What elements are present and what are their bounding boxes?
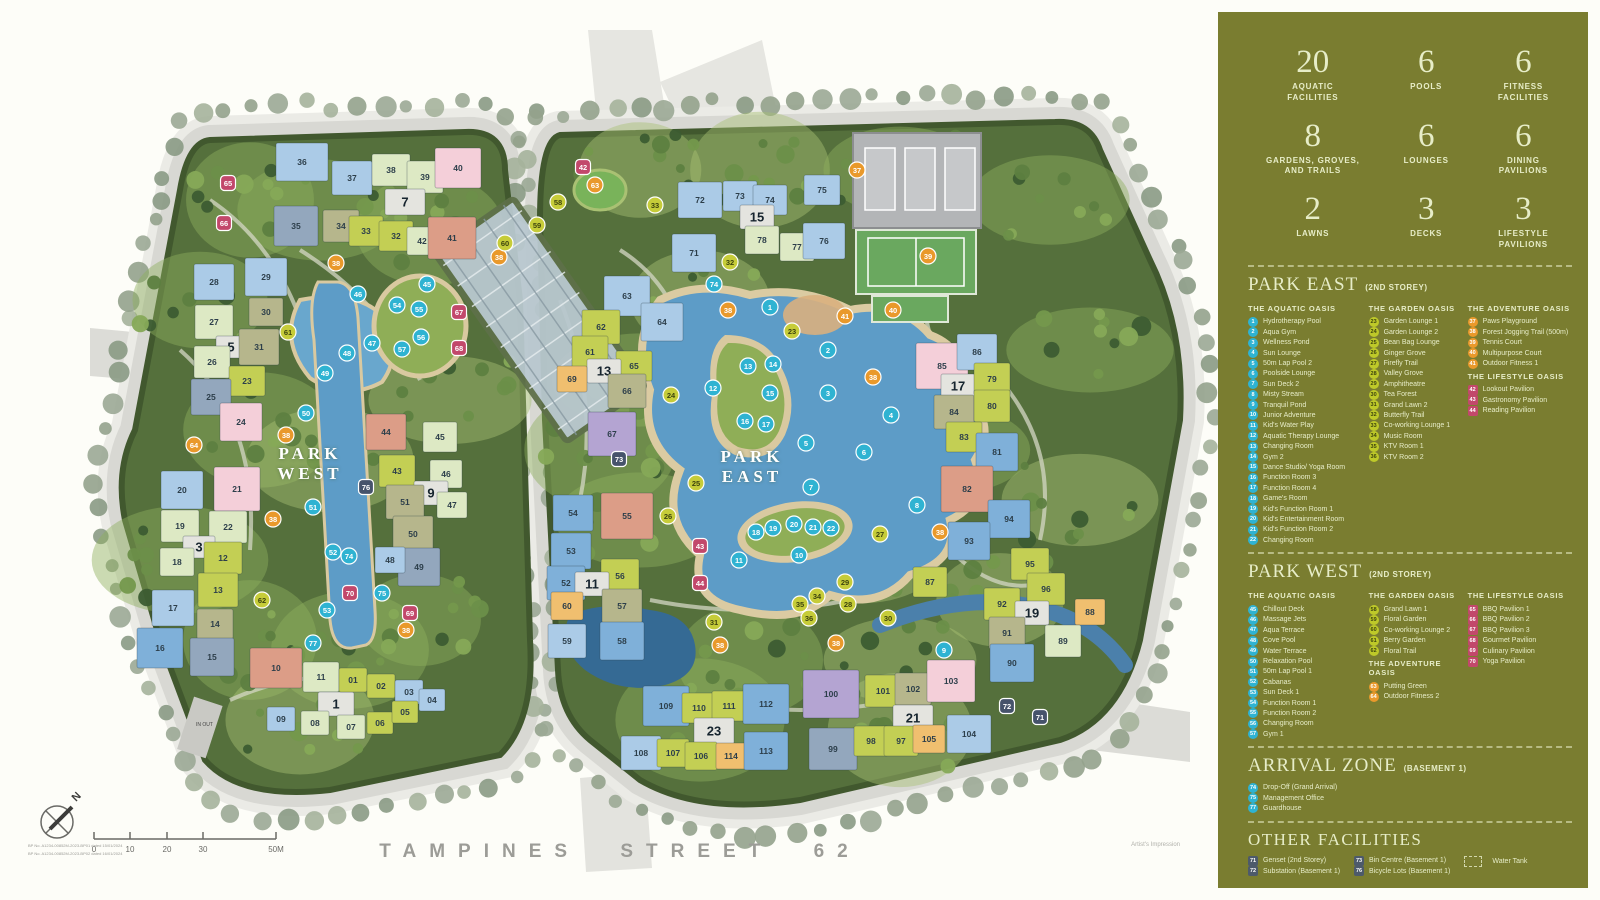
section-title: PARK WEST: [1248, 561, 1362, 583]
legend-item-22: 22Changing Room: [1248, 535, 1369, 545]
perimeter-tree: [1120, 712, 1140, 732]
map-badge-aq-51: 51: [305, 499, 321, 515]
legend-item-50: 50Relaxation Pool: [1248, 656, 1369, 666]
legend-item-16: 16Function Room 3: [1248, 473, 1369, 483]
map-badge-ga-61: 61: [280, 324, 296, 340]
legend-badge-25: 25: [1369, 338, 1379, 348]
map-building-71: 71: [672, 234, 716, 272]
tree: [1073, 528, 1084, 539]
svg-text:1: 1: [768, 303, 772, 312]
svg-text:104: 104: [962, 729, 976, 739]
legend-item-66: 66BBQ Pavilion 2: [1468, 615, 1572, 625]
perimeter-tree: [87, 445, 108, 466]
svg-text:57: 57: [398, 345, 406, 354]
map-badge-aq-2: 2: [820, 342, 836, 358]
tree: [776, 145, 794, 163]
tree: [941, 759, 956, 774]
legend-item-label: Game's Room: [1263, 495, 1308, 502]
group-header: THE GARDEN OASIS: [1369, 304, 1468, 313]
map-building-24: 24: [220, 403, 262, 441]
svg-text:71: 71: [1036, 713, 1044, 722]
svg-text:43: 43: [392, 466, 402, 476]
svg-text:70: 70: [346, 589, 354, 598]
perimeter-tree: [1201, 355, 1218, 373]
legend-item-label: KTV Room 1: [1384, 443, 1424, 450]
svg-text:99: 99: [828, 744, 838, 754]
legend-badge-26: 26: [1369, 348, 1379, 358]
legend-item-27: 27Firefly Trail: [1369, 358, 1468, 368]
stat-value: 3: [1378, 193, 1475, 226]
legend-item-label: Misty Stream: [1263, 391, 1304, 398]
tree: [463, 411, 474, 422]
svg-text:05: 05: [400, 707, 410, 717]
perimeter-tree: [860, 811, 882, 833]
tree: [584, 147, 593, 156]
legend-item-label: Garden Lounge 2: [1384, 329, 1439, 336]
svg-text:37: 37: [853, 166, 861, 175]
svg-text:18: 18: [752, 528, 760, 537]
map-building-44: 44: [366, 414, 406, 450]
legend-item-49: 49Water Terrace: [1248, 646, 1369, 656]
map-badge-aq-11: 11: [731, 552, 747, 568]
legend-item-label: Drop-Off (Grand Arrival): [1263, 784, 1337, 791]
legend-item-19: 19Kid's Function Room 1: [1248, 504, 1369, 514]
svg-text:110: 110: [692, 703, 706, 713]
map-building-100: 100: [803, 670, 859, 718]
perimeter-tree: [305, 811, 324, 830]
tree: [186, 171, 204, 189]
perimeter-tree: [166, 727, 181, 742]
svg-text:55: 55: [622, 511, 632, 521]
svg-text:79: 79: [987, 374, 997, 384]
map-building-75: 75: [804, 175, 840, 205]
legend-item-57: 57Gym 1: [1248, 729, 1369, 739]
svg-text:34: 34: [336, 221, 346, 231]
map-badge-ar-77: 77: [305, 635, 321, 651]
perimeter-tree: [1154, 644, 1169, 659]
perimeter-tree: [513, 136, 526, 149]
legend-item-label: Grand Lawn 1: [1384, 606, 1428, 613]
legend-item-72: 72Substation (Basement 1): [1248, 866, 1340, 876]
legend-item-label: Water Terrace: [1263, 648, 1307, 655]
map-badge-aq-1: 1: [762, 299, 778, 315]
legend-badge-63: 63: [1369, 682, 1379, 692]
svg-text:61: 61: [585, 347, 595, 357]
map-building-69: 69: [557, 366, 587, 392]
section-subtitle: (BASEMENT 1): [1404, 764, 1467, 773]
map-badge-ad-38: 38: [865, 369, 881, 385]
perimeter-tree: [245, 99, 258, 112]
tree: [724, 679, 735, 690]
perimeter-tree: [99, 422, 112, 435]
svg-text:73: 73: [615, 455, 623, 464]
map-building-26: 26: [194, 346, 230, 378]
svg-text:66: 66: [622, 386, 632, 396]
map-badge-ar-74: 74: [706, 276, 722, 292]
tree: [1074, 206, 1086, 218]
legend-badge-19: 19: [1248, 504, 1258, 514]
map-badge-aq-46: 46: [350, 286, 366, 302]
tree: [788, 137, 799, 148]
legend-item-63: 63Putting Green: [1369, 681, 1468, 691]
perimeter-tree: [661, 812, 673, 824]
legend-badge-53: 53: [1248, 688, 1258, 698]
legend-item-label: Berry Garden: [1384, 637, 1426, 644]
svg-text:83: 83: [959, 432, 969, 442]
svg-text:16: 16: [155, 643, 165, 653]
svg-text:80: 80: [987, 401, 997, 411]
perimeter-tree: [435, 785, 454, 804]
map-building-82: 82: [941, 466, 993, 512]
legend-item-52: 52Cabanas: [1248, 677, 1369, 687]
map-badge-aq-14: 14: [765, 356, 781, 372]
legend-item-label: Management Office: [1263, 795, 1324, 802]
legend-item-label: Tennis Court: [1483, 339, 1522, 346]
svg-text:8: 8: [915, 501, 919, 510]
svg-text:9: 9: [942, 646, 946, 655]
legend-badge-64: 64: [1369, 692, 1379, 702]
svg-text:21: 21: [232, 484, 242, 494]
tree: [1021, 462, 1029, 470]
tree: [1093, 369, 1103, 379]
svg-text:20: 20: [790, 520, 798, 529]
svg-text:19: 19: [1025, 606, 1039, 621]
legend-item-label: Culinary Pavilion: [1483, 648, 1535, 655]
svg-text:38: 38: [386, 165, 396, 175]
tree: [1123, 509, 1135, 521]
tree: [1109, 338, 1119, 348]
tree: [265, 631, 275, 641]
perimeter-tree: [1173, 562, 1189, 578]
tree: [641, 458, 661, 478]
legend-badge-8: 8: [1248, 390, 1258, 400]
site-plan-page: IN OUT3637383940735343332424128293027526…: [0, 0, 1600, 900]
tree: [192, 190, 205, 203]
svg-text:65: 65: [224, 179, 232, 188]
tree: [748, 268, 761, 281]
svg-text:30: 30: [884, 614, 892, 623]
tree: [1058, 172, 1071, 185]
legend-item-label: Butterfly Trail: [1384, 412, 1425, 419]
map-building-35: 35: [274, 206, 318, 246]
svg-text:09: 09: [276, 714, 286, 724]
perimeter-tree: [323, 103, 338, 118]
legend-item-label: Aqua Terrace: [1263, 627, 1305, 634]
legend-column: THE AQUATIC OASIS45Chillout Deck46Massag…: [1248, 588, 1369, 739]
svg-text:64: 64: [657, 317, 667, 327]
perimeter-tree: [1021, 86, 1036, 101]
group-header: THE AQUATIC OASIS: [1248, 304, 1369, 313]
perimeter-tree: [994, 86, 1014, 106]
tennis-area: [853, 133, 981, 322]
svg-text:63: 63: [591, 181, 599, 190]
map-building-59: 59: [548, 624, 586, 658]
svg-text:10: 10: [271, 663, 281, 673]
stat-value: 8: [1248, 120, 1378, 153]
stat-label: FITNESS FACILITIES: [1475, 82, 1572, 104]
legend-item-label: Sun Deck 2: [1263, 381, 1299, 388]
legend-badge-39: 39: [1468, 338, 1478, 348]
legend-badge-51: 51: [1248, 667, 1258, 677]
tree: [167, 307, 179, 319]
tree: [466, 191, 478, 203]
legend-item-label: Valley Grove: [1384, 370, 1424, 377]
legend-item-2: 2Aqua Gym: [1248, 327, 1369, 337]
perimeter-tree: [919, 85, 935, 101]
map-building-80: 80: [974, 390, 1010, 422]
tree: [256, 709, 264, 717]
legend-item-48: 48Cove Pool: [1248, 636, 1369, 646]
legend-item-label: Tranquil Pond: [1263, 402, 1306, 409]
street-name-label: TAMPINES STREET 62: [270, 841, 970, 863]
perimeter-tree: [937, 786, 953, 802]
legend-badge-52: 52: [1248, 677, 1258, 687]
svg-text:100: 100: [824, 689, 838, 699]
legend-badge-73: 73: [1354, 856, 1364, 866]
group-header: THE AQUATIC OASIS: [1248, 591, 1369, 600]
svg-text:1: 1: [332, 697, 339, 712]
map-badge-aq-15: 15: [762, 385, 778, 401]
svg-text:63: 63: [622, 291, 632, 301]
legend-item-18: 18Game's Room: [1248, 493, 1369, 503]
legend-item-70: 70Yoga Pavilion: [1468, 656, 1572, 666]
perimeter-tree: [328, 806, 346, 824]
tree: [376, 657, 384, 665]
legend-item-label: Function Room 3: [1263, 474, 1316, 481]
legend-item-label: Changing Room: [1263, 537, 1314, 544]
legend-item-label: Gym 1: [1263, 731, 1284, 738]
tree: [538, 448, 554, 464]
legend-item-label: Cove Pool: [1263, 637, 1295, 644]
tree: [434, 194, 449, 209]
legend-item-20: 20Kid's Entertainment Room: [1248, 514, 1369, 524]
stat-3: 8GARDENS, GROVES, AND TRAILS: [1248, 120, 1378, 178]
stat-6: 2LAWNS: [1248, 193, 1378, 251]
perimeter-tree: [966, 90, 986, 110]
map-badge-li-65: 65: [221, 176, 236, 191]
legend-item-label: Function Room 4: [1263, 485, 1316, 492]
tree: [1089, 201, 1099, 211]
svg-text:52: 52: [561, 578, 571, 588]
perimeter-tree: [653, 100, 674, 121]
other-facilities-column: 73Bin Centre (Basement 1)76Bicycle Lots …: [1354, 856, 1450, 877]
map-building-88: 88: [1075, 599, 1105, 625]
tree: [353, 743, 364, 754]
svg-text:21: 21: [809, 523, 817, 532]
legend-badge-27: 27: [1369, 359, 1379, 369]
legend-badge-16: 16: [1248, 473, 1258, 483]
svg-text:20: 20: [163, 845, 172, 854]
svg-text:46: 46: [354, 290, 362, 299]
svg-text:31: 31: [710, 618, 718, 627]
legend-item-53: 53Sun Deck 1: [1248, 688, 1369, 698]
legend-badge-37: 37: [1468, 317, 1478, 327]
map-badge-aq-17: 17: [758, 416, 774, 432]
map-building-113: 113: [744, 732, 788, 770]
other-facilities-column: 71Genset (2nd Storey)72Substation (Basem…: [1248, 856, 1340, 877]
svg-text:38: 38: [269, 515, 277, 524]
legend-badge-58: 58: [1369, 605, 1379, 615]
perimeter-tree: [409, 793, 427, 811]
svg-text:56: 56: [615, 571, 625, 581]
svg-text:12: 12: [709, 384, 717, 393]
legend-item-label: Bin Centre (Basement 1): [1369, 857, 1446, 864]
map-badge-ad-38: 38: [278, 427, 294, 443]
perimeter-tree: [347, 97, 366, 116]
legend-badge-56: 56: [1248, 719, 1258, 729]
tree: [800, 652, 808, 660]
perimeter-tree: [121, 636, 136, 651]
section-title: PARK EAST: [1248, 274, 1358, 296]
tree: [1036, 310, 1053, 327]
stat-label: LAWNS: [1248, 229, 1378, 240]
group-header: THE ADVENTURE OASIS: [1369, 659, 1468, 677]
map-building-15: 15: [740, 205, 774, 229]
perimeter-tree: [150, 213, 163, 226]
group-header: THE LIFESTYLE OASIS: [1468, 372, 1572, 381]
map-badge-aq-50: 50: [298, 405, 314, 421]
perimeter-tree: [812, 89, 832, 109]
legend-item-label: Substation (Basement 1): [1263, 868, 1340, 875]
perimeter-tree: [525, 752, 541, 768]
svg-text:29: 29: [841, 578, 849, 587]
svg-text:106: 106: [694, 751, 708, 761]
perimeter-tree: [299, 93, 314, 108]
legend-item-36: 36KTV Room 2: [1369, 452, 1468, 462]
map-building-104: 104: [947, 715, 991, 753]
legend-item-label: Amphitheatre: [1384, 381, 1426, 388]
tree: [471, 600, 489, 618]
map-badge-aq-49: 49: [317, 365, 333, 381]
legend-badge-9: 9: [1248, 400, 1258, 410]
tree: [725, 164, 744, 183]
svg-text:96: 96: [1041, 584, 1051, 594]
legend-item-47: 47Aqua Terrace: [1248, 625, 1369, 635]
map-building-66: 66: [608, 374, 646, 408]
svg-text:38: 38: [869, 373, 877, 382]
svg-text:95: 95: [1025, 559, 1035, 569]
svg-text:58: 58: [617, 636, 627, 646]
legend-item-3: 3Wellness Pond: [1248, 338, 1369, 348]
svg-text:9: 9: [427, 486, 434, 501]
map-badge-ga-26: 26: [660, 508, 676, 524]
svg-text:15: 15: [766, 389, 774, 398]
map-building-76: 76: [803, 223, 845, 259]
tree: [861, 632, 879, 650]
map-badge-aq-18: 18: [748, 524, 764, 540]
perimeter-tree: [569, 758, 583, 772]
perimeter-tree: [557, 111, 569, 123]
svg-text:98: 98: [866, 736, 876, 746]
svg-text:93: 93: [964, 536, 974, 546]
svg-text:15: 15: [207, 652, 217, 662]
stat-2: 6FITNESS FACILITIES: [1475, 46, 1572, 104]
perimeter-tree: [1161, 620, 1173, 632]
artist-impression-note: Artist's Impression: [1020, 842, 1180, 848]
legend-badge-46: 46: [1248, 615, 1258, 625]
map-building-106: 106: [685, 742, 717, 770]
svg-text:72: 72: [1003, 702, 1011, 711]
map-badge-ga-28: 28: [840, 596, 856, 612]
legend-item-42: 42Lookout Pavilion: [1468, 385, 1572, 395]
legend-item-label: Outdoor Fitness 2: [1384, 693, 1440, 700]
perimeter-tree: [906, 793, 927, 814]
perimeter-tree: [400, 100, 412, 112]
legend-item-46: 46Massage Jets: [1248, 615, 1369, 625]
legend-item-41: 41Outdoor Fitness 1: [1468, 358, 1572, 368]
legend-item-label: Putting Green: [1384, 683, 1427, 690]
legend-badge-45: 45: [1248, 605, 1258, 615]
perimeter-tree: [1110, 729, 1130, 749]
legend-item-label: 50m Lap Pool 1: [1263, 668, 1312, 675]
tree: [1094, 309, 1105, 320]
svg-text:84: 84: [949, 407, 959, 417]
tree: [119, 577, 136, 594]
water-tank-item: Water Tank: [1464, 857, 1527, 867]
legend-item-label: Guardhouse: [1263, 805, 1302, 812]
svg-text:107: 107: [666, 748, 680, 758]
legend-item-10: 10Junior Adventure: [1248, 410, 1369, 420]
map-building-01: 01: [339, 668, 367, 692]
svg-text:50: 50: [302, 409, 310, 418]
perimeter-tree: [90, 498, 108, 516]
map-badge-aq-3: 3: [820, 385, 836, 401]
legend-item-73: 73Bin Centre (Basement 1): [1354, 856, 1450, 866]
legend-badge-28: 28: [1369, 369, 1379, 379]
svg-text:78: 78: [757, 235, 767, 245]
legend-badge-14: 14: [1248, 452, 1258, 462]
perimeter-tree: [479, 779, 498, 798]
svg-text:6: 6: [862, 448, 866, 457]
map-badge-fa-73: 73: [612, 452, 627, 467]
perimeter-tree: [171, 112, 188, 129]
svg-text:87: 87: [925, 577, 935, 587]
map-badge-li-43: 43: [693, 539, 708, 554]
legend-badge-69: 69: [1468, 646, 1478, 656]
svg-text:23: 23: [707, 724, 721, 739]
legend-badge-55: 55: [1248, 708, 1258, 718]
perimeter-tree: [1013, 772, 1028, 787]
svg-text:12: 12: [218, 553, 228, 563]
legend-badge-61: 61: [1369, 636, 1379, 646]
stat-value: 6: [1475, 120, 1572, 153]
legend-badge-50: 50: [1248, 657, 1258, 667]
water-tank-column: Water Tank: [1464, 856, 1527, 877]
svg-text:38: 38: [724, 306, 732, 315]
svg-text:08: 08: [310, 718, 320, 728]
group-header: THE GARDEN OASIS: [1369, 591, 1468, 600]
perimeter-tree: [839, 88, 861, 110]
svg-text:33: 33: [361, 226, 371, 236]
svg-text:76: 76: [819, 236, 829, 246]
perimeter-tree: [1194, 309, 1211, 326]
perimeter-tree: [152, 192, 170, 210]
map-building-103: 103: [927, 660, 975, 702]
map-building-96: 96: [1027, 573, 1065, 605]
tree: [475, 362, 489, 376]
svg-text:92: 92: [997, 599, 1007, 609]
svg-text:13: 13: [744, 362, 752, 371]
svg-text:16: 16: [741, 417, 749, 426]
map-building-15: 15: [190, 638, 234, 676]
svg-text:46: 46: [441, 469, 451, 479]
section-divider: [1248, 265, 1572, 267]
svg-text:75: 75: [817, 185, 827, 195]
perimeter-tree: [681, 96, 700, 115]
legend-item-label: Bicycle Lots (Basement 1): [1369, 868, 1450, 875]
legend-badge-5: 5: [1248, 359, 1258, 369]
park-east-label: PARK EAST: [692, 447, 812, 488]
